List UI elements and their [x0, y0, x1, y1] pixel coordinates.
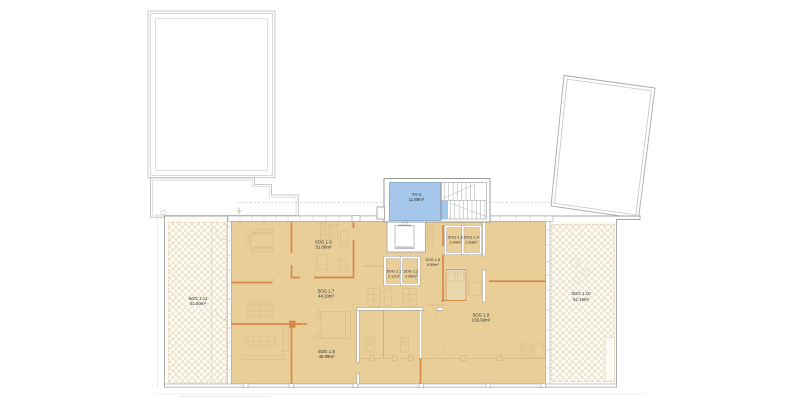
- svg-text:11.88m²: 11.88m²: [409, 197, 425, 202]
- svg-text:5OG 1.10: 5OG 1.10: [571, 291, 591, 296]
- svg-text:62.19m²: 62.19m²: [573, 297, 590, 302]
- svg-text:2.83m²: 2.83m²: [465, 240, 478, 245]
- svg-text:51.50m²: 51.50m²: [190, 301, 207, 306]
- svg-text:46.88m²: 46.88m²: [318, 354, 335, 359]
- svg-text:130.93m²: 130.93m²: [472, 318, 491, 323]
- svg-text:51.06m²: 51.06m²: [315, 245, 332, 250]
- svg-text:44.10m²: 44.10m²: [318, 294, 335, 299]
- svg-text:2.12m²: 2.12m²: [388, 273, 401, 278]
- svg-text:9.50m²: 9.50m²: [427, 262, 440, 267]
- svg-text:2.36m²: 2.36m²: [405, 273, 418, 278]
- svg-text:2.94m²: 2.94m²: [449, 240, 462, 245]
